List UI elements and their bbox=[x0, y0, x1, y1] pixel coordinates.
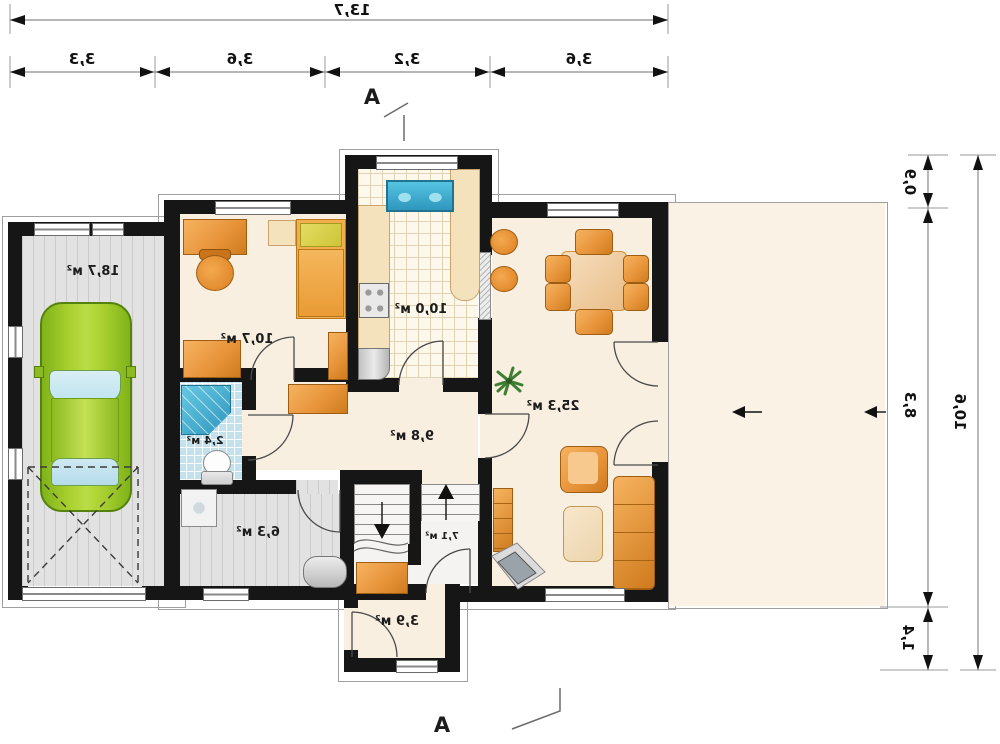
room-label-living: 25,3 м² bbox=[518, 397, 588, 415]
room-label-garage: 18,7 м² bbox=[58, 262, 128, 280]
section-mark-top: A bbox=[358, 84, 386, 110]
room-label-bathroom: 2,4 м² bbox=[172, 432, 238, 448]
floor-plan: 18,7 м² 10,7 м² 10,0 м² 25,3 м² 9,8 м² 2… bbox=[0, 0, 1000, 744]
dim-right-segment: 8,3 bbox=[903, 385, 917, 425]
room-label-bedroom: 10,7 м² bbox=[212, 330, 282, 348]
section-mark-bottom: A bbox=[428, 712, 456, 738]
section-line-marks bbox=[384, 103, 560, 729]
tv-icon bbox=[492, 543, 545, 589]
right-dimension-lines bbox=[880, 155, 996, 670]
bathroom-door-arc bbox=[248, 415, 293, 460]
dim-total-width: 13,7 bbox=[322, 2, 382, 18]
dim-segment: 3,3 bbox=[57, 50, 107, 68]
hall-living-door-arc bbox=[485, 414, 529, 458]
room-label-stairs: 7,1 м² bbox=[414, 529, 470, 543]
garage-dashed-lines bbox=[28, 467, 138, 583]
room-label-utility: 6,3 м² bbox=[223, 523, 293, 541]
room-label-hall: 9,8 м² bbox=[377, 427, 447, 445]
plant-icon bbox=[496, 368, 522, 394]
terrace-arrows bbox=[732, 406, 886, 418]
terrace-door-arc-top bbox=[614, 342, 658, 386]
door-arcs bbox=[248, 337, 658, 657]
room-label-entry: 3,9 м² bbox=[362, 612, 432, 630]
utility-door-arc bbox=[298, 490, 340, 532]
terrace-door-arc-bottom bbox=[614, 421, 658, 465]
dim-segment: 3,6 bbox=[215, 50, 265, 68]
room-label-kitchen: 10,0 м² bbox=[386, 300, 456, 318]
kitchen-door-arc bbox=[399, 341, 443, 385]
dim-segment: 3,6 bbox=[554, 50, 604, 68]
dim-right-segment: 0,9 bbox=[903, 162, 917, 202]
plan-annotations bbox=[0, 0, 1000, 744]
dim-total-height: 10,6 bbox=[953, 390, 967, 434]
dim-right-segment: 1,4 bbox=[901, 618, 915, 658]
dim-segment: 3,2 bbox=[382, 50, 432, 68]
stairs-entry-door-arc bbox=[426, 549, 470, 593]
